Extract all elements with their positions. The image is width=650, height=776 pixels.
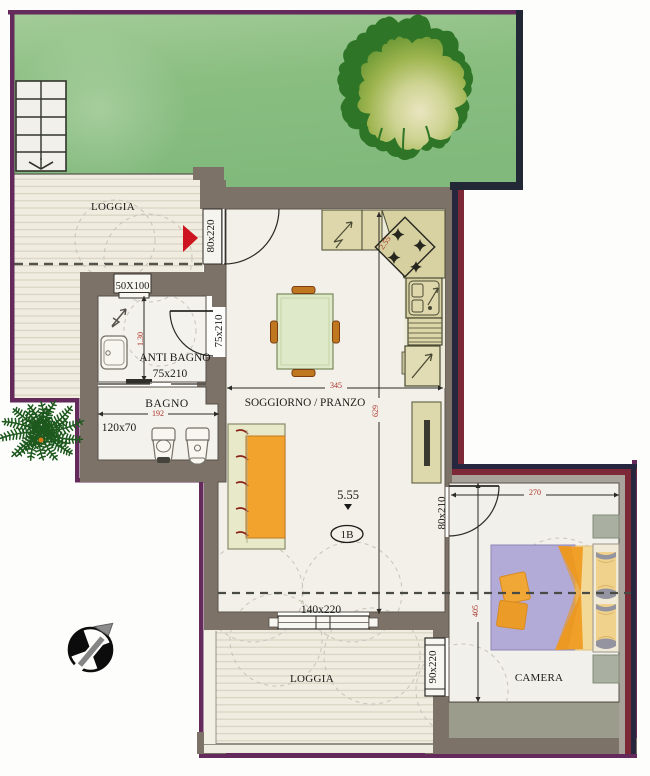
svg-text:50X100: 50X100 (116, 281, 150, 292)
svg-text:75x210: 75x210 (213, 314, 225, 348)
svg-text:629: 629 (371, 405, 380, 417)
svg-text:5.55: 5.55 (337, 488, 359, 502)
svg-text:LOGGIA: LOGGIA (290, 673, 334, 685)
svg-text:345: 345 (330, 381, 342, 390)
svg-text:1.30: 1.30 (136, 332, 145, 346)
svg-text:75x210: 75x210 (153, 368, 188, 380)
svg-text:80x220: 80x220 (205, 219, 217, 253)
svg-text:90x220: 90x220 (427, 650, 439, 684)
svg-text:270: 270 (529, 488, 541, 497)
svg-text:80x210: 80x210 (436, 496, 448, 530)
svg-text:ANTI BAGNO: ANTI BAGNO (139, 352, 210, 364)
svg-text:140x220: 140x220 (301, 604, 342, 616)
svg-text:192: 192 (152, 409, 164, 418)
svg-text:120x70: 120x70 (102, 422, 137, 434)
svg-text:BAGNO: BAGNO (145, 398, 188, 410)
svg-text:CAMERA: CAMERA (515, 672, 563, 684)
svg-text:SOGGIORNO / PRANZO: SOGGIORNO / PRANZO (245, 397, 366, 409)
svg-text:405: 405 (471, 605, 480, 617)
svg-text:1B: 1B (341, 529, 354, 541)
